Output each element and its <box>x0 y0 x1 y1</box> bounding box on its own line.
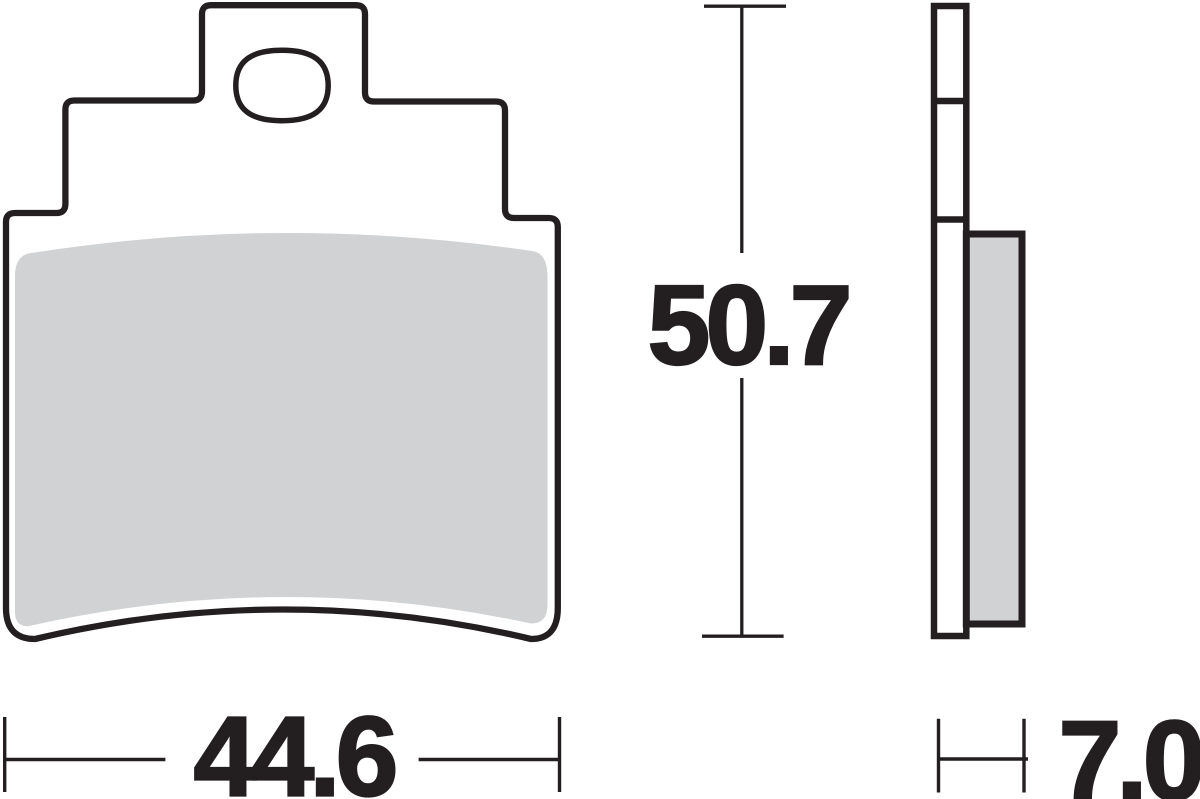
svg-text:7.0: 7.0 <box>1058 698 1200 799</box>
svg-text:44.6: 44.6 <box>194 694 395 799</box>
svg-text:50.7: 50.7 <box>648 262 848 388</box>
